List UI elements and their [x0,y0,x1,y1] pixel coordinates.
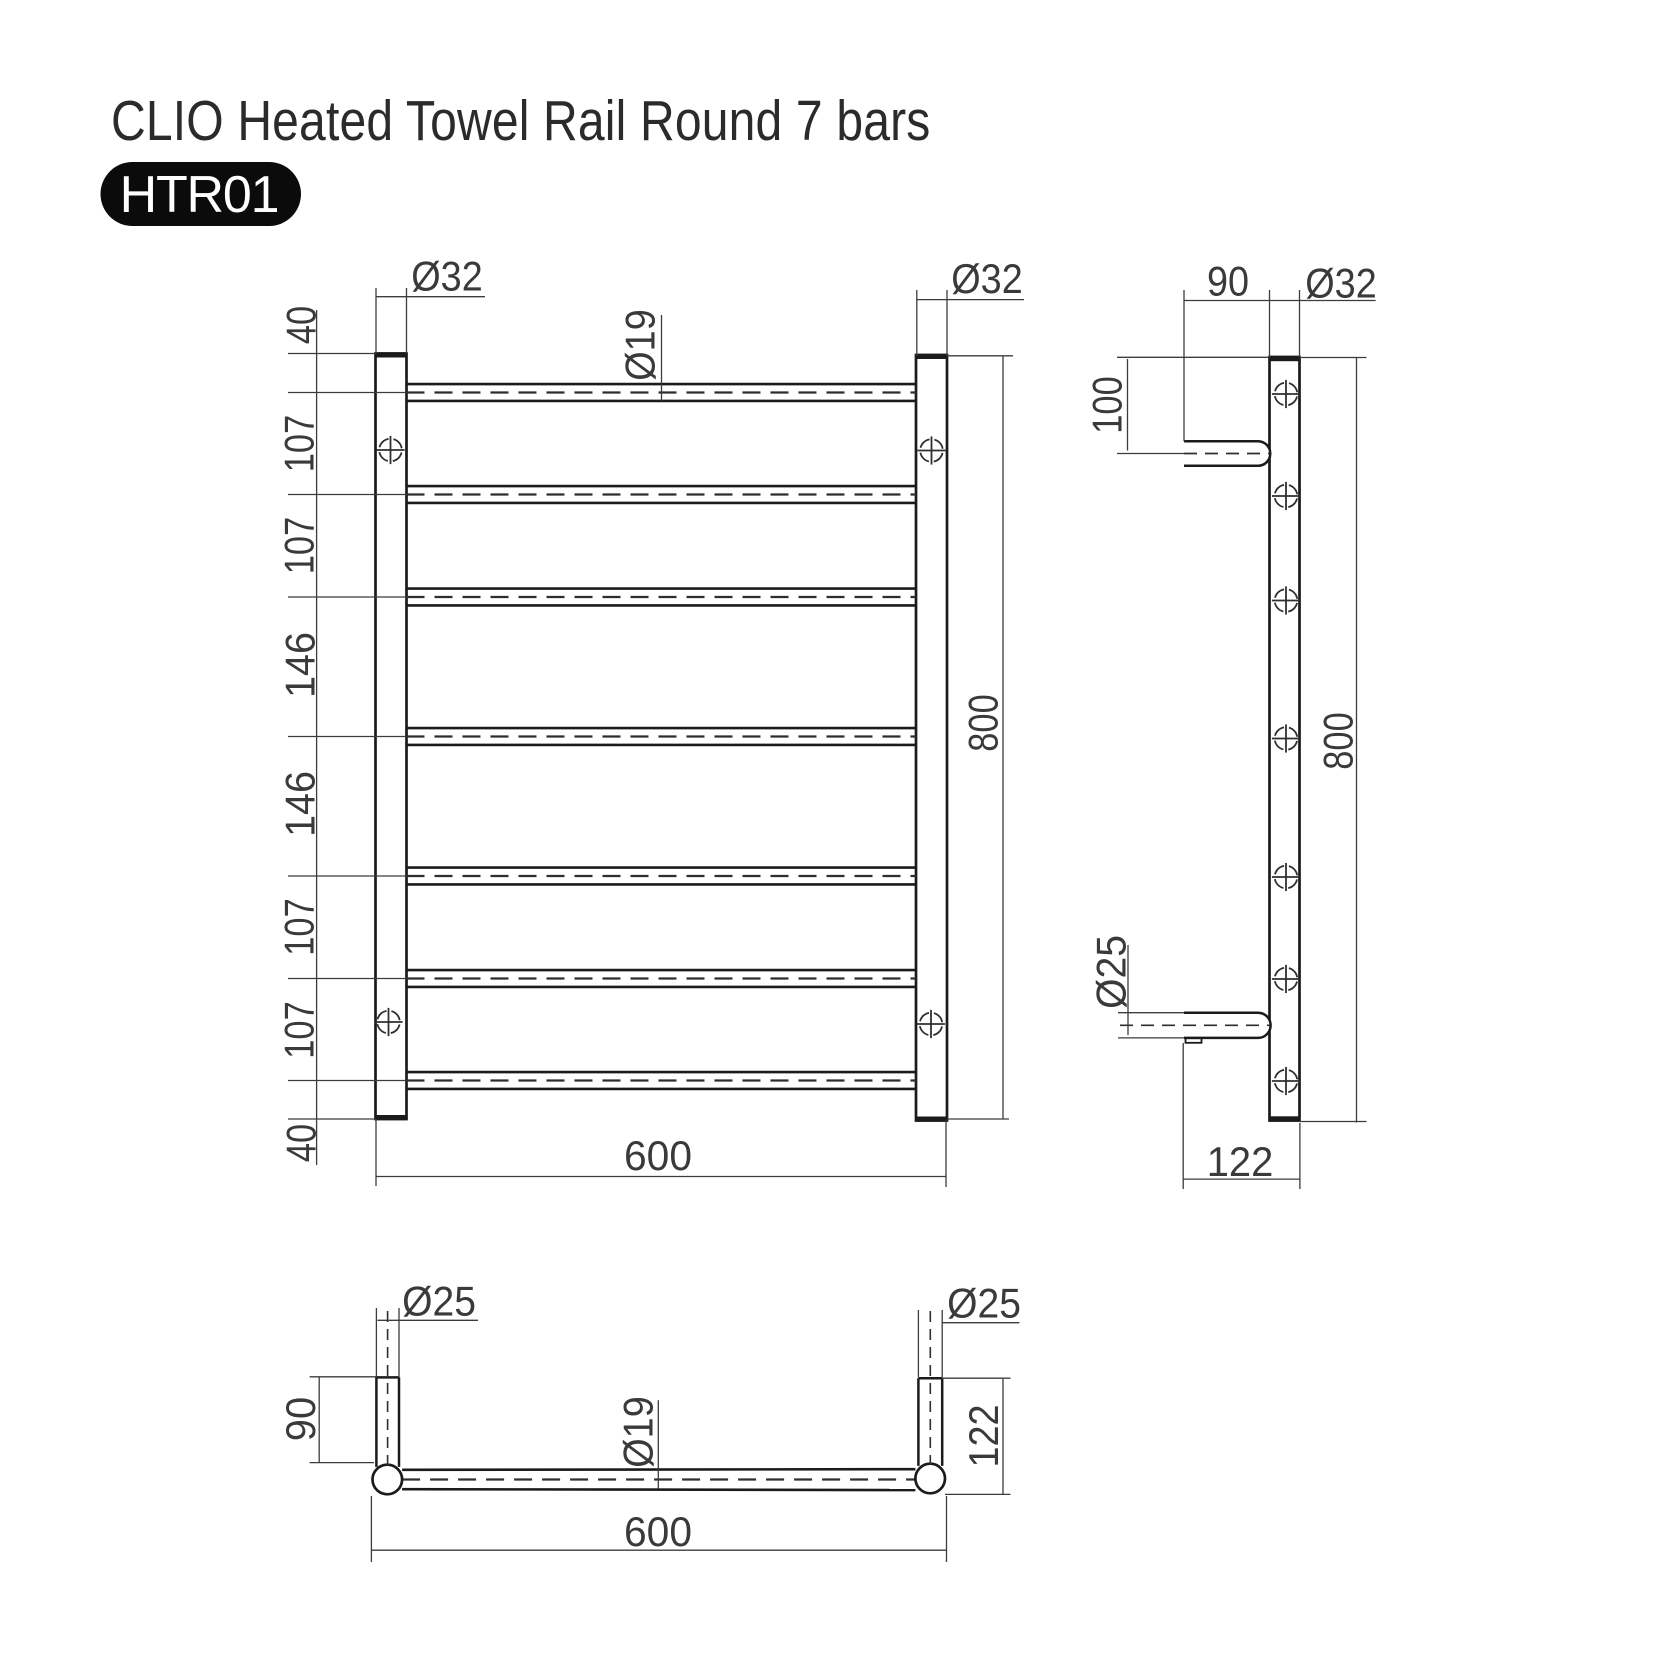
svg-text:107: 107 [276,517,323,574]
svg-text:107: 107 [276,415,323,472]
svg-text:122: 122 [1207,1138,1274,1185]
svg-text:Ø25: Ø25 [402,1277,476,1325]
svg-text:107: 107 [276,898,323,955]
svg-text:100: 100 [1084,376,1131,433]
svg-text:600: 600 [624,1509,692,1556]
svg-text:Ø25: Ø25 [947,1279,1021,1327]
svg-text:Ø19: Ø19 [616,1396,662,1467]
svg-text:800: 800 [960,694,1007,751]
svg-text:Ø32: Ø32 [411,254,482,300]
svg-text:40: 40 [278,306,325,344]
svg-text:800: 800 [1315,712,1362,769]
svg-text:107: 107 [276,1001,323,1058]
svg-text:40: 40 [278,1124,325,1162]
svg-text:Ø25: Ø25 [1087,935,1135,1009]
svg-text:146: 146 [276,771,323,837]
svg-text:146: 146 [276,632,323,698]
svg-text:90: 90 [1207,259,1249,305]
svg-text:600: 600 [624,1133,692,1180]
svg-text:122: 122 [961,1404,1007,1467]
svg-text:Ø32: Ø32 [1305,261,1376,307]
svg-text:Ø19: Ø19 [618,309,664,380]
svg-text:HTR01: HTR01 [120,166,279,224]
svg-text:90: 90 [277,1397,324,1441]
svg-text:CLIO Heated Towel Rail Round 7: CLIO Heated Towel Rail Round 7 bars [111,89,930,153]
svg-text:Ø32: Ø32 [951,256,1022,302]
